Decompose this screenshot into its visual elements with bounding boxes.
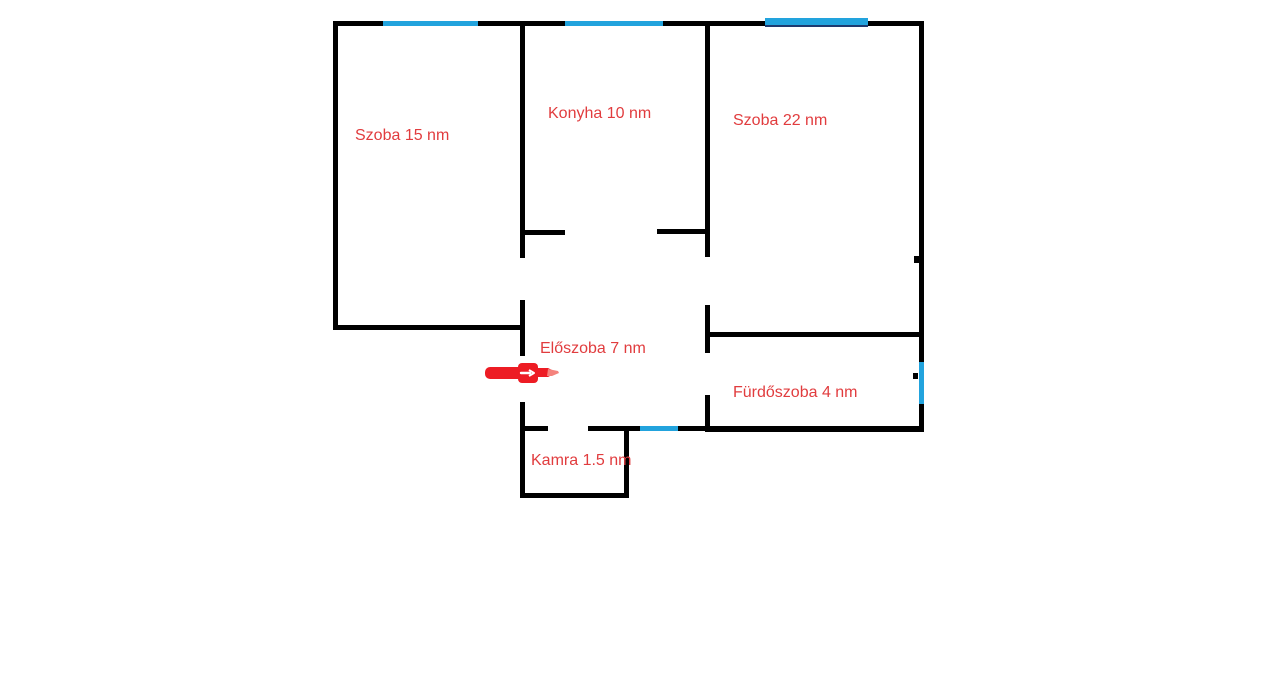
wall-bathroom-bottom xyxy=(705,426,924,432)
room-label-szoba22: Szoba 22 nm xyxy=(733,111,827,130)
wall-tick-lower xyxy=(913,373,918,379)
wall-kamra-bottom xyxy=(520,493,629,498)
wall-bathroom-top xyxy=(705,332,924,337)
floorplan-canvas: Szoba 15 nm Konyha 10 nm Szoba 22 nm Elő… xyxy=(0,0,1280,677)
wall-a-mid xyxy=(520,300,525,356)
wall-a-upper xyxy=(520,21,525,258)
window-bathroom-right xyxy=(919,362,924,404)
wall-left xyxy=(333,21,338,330)
wall-b-upper xyxy=(705,21,710,257)
wall-konyha-stub-left xyxy=(520,230,565,235)
wall-entry-stub xyxy=(520,426,548,431)
window-eloszoba-bottom xyxy=(640,426,678,431)
wall-szoba15-bottom xyxy=(333,325,525,330)
wall-a-lower xyxy=(520,402,525,498)
window-szoba15 xyxy=(383,21,478,26)
window-szoba22 xyxy=(765,18,868,27)
wall-tick-upper xyxy=(914,256,919,263)
room-label-eloszoba: Előszoba 7 nm xyxy=(540,339,646,358)
room-label-furdoszoba: Fürdőszoba 4 nm xyxy=(733,383,858,402)
entrance-arrow-icon xyxy=(482,358,564,386)
room-label-konyha: Konyha 10 nm xyxy=(548,104,651,123)
room-label-szoba15: Szoba 15 nm xyxy=(355,126,449,145)
room-label-kamra: Kamra 1.5 nm xyxy=(531,451,631,470)
wall-b-mid xyxy=(705,305,710,353)
wall-konyha-stub-right xyxy=(657,229,708,234)
window-konyha xyxy=(565,21,663,26)
